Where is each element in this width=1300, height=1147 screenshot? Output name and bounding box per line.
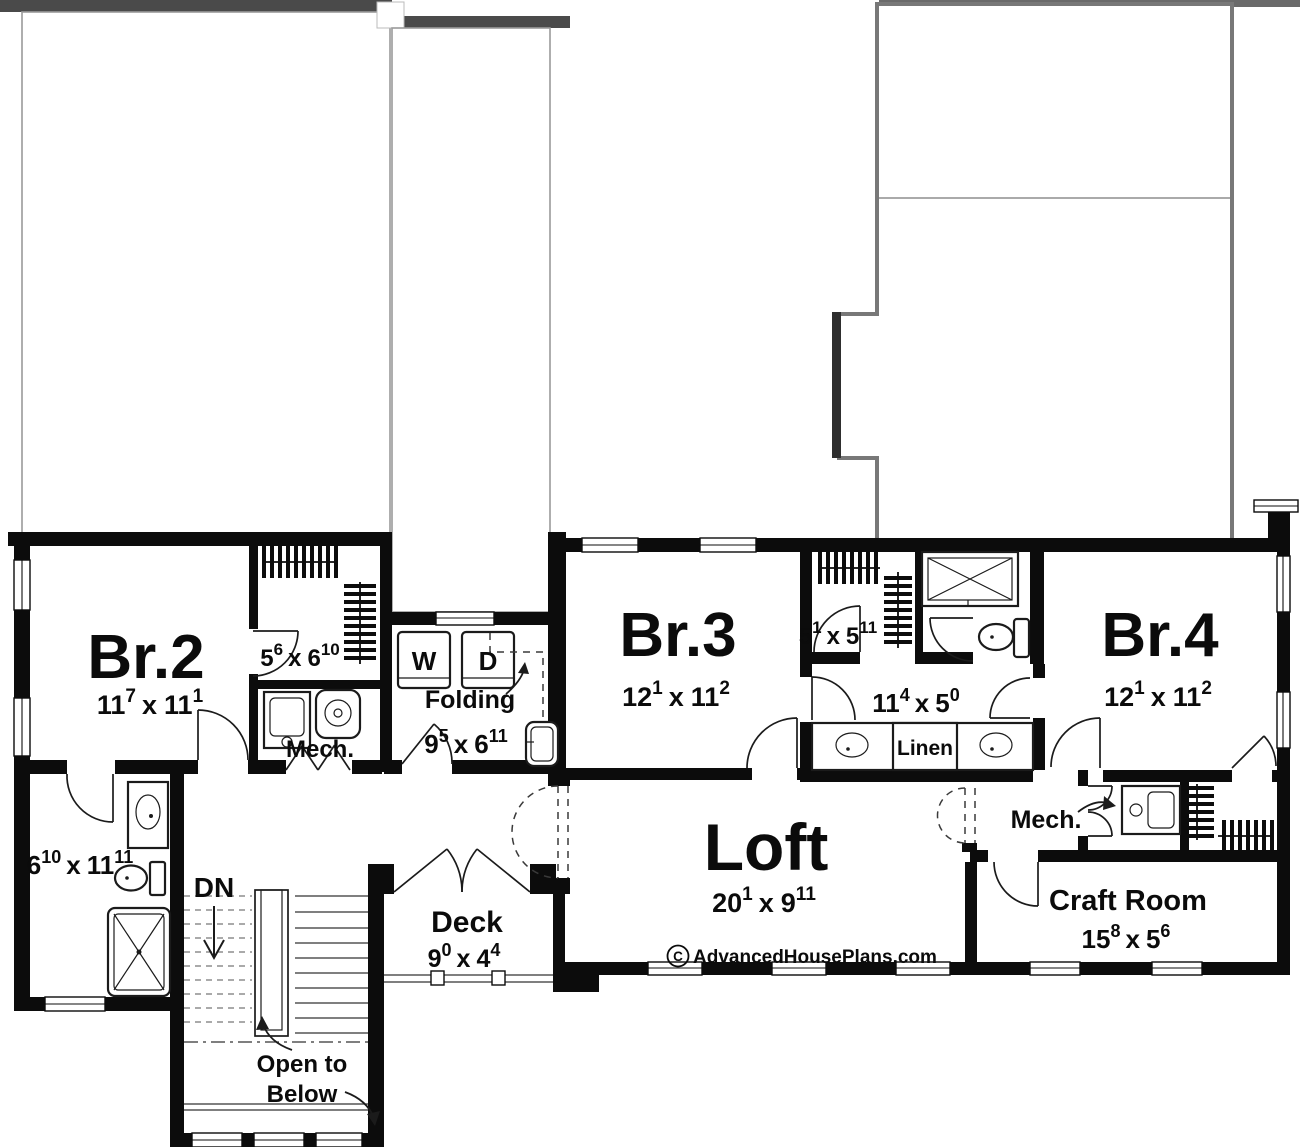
down-arrow — [204, 906, 224, 958]
br4-label: Br.4 — [1101, 601, 1219, 670]
closet-rod — [818, 552, 880, 584]
closet-rod — [262, 546, 336, 578]
loft-dimensions: 201x911 — [712, 884, 816, 918]
br4-dimensions: 121x112 — [1104, 678, 1212, 712]
window — [316, 1133, 362, 1147]
mech-left-label: Mech. — [286, 736, 354, 763]
window — [14, 560, 30, 610]
window — [1152, 962, 1202, 975]
window — [1030, 962, 1080, 975]
stair-rail — [255, 890, 288, 1036]
washer-label: W — [412, 646, 437, 676]
branding-site: AdvancedHousePlans.com — [693, 947, 937, 968]
door-bath-corridor-right — [990, 678, 1030, 718]
window — [1254, 500, 1298, 512]
copyright-branding: C AdvancedHousePlans.com — [668, 946, 937, 969]
door-deck-french — [394, 849, 530, 892]
dn-label: DN — [194, 872, 234, 903]
bath-main-dimensions: 114x50 — [872, 685, 959, 718]
br2-closet-dimensions: 56x610 — [260, 640, 339, 672]
water-heater-fixture — [316, 690, 360, 738]
br3-label: Br.3 — [619, 601, 736, 670]
door-br4-closet — [1232, 736, 1276, 768]
br2-dimensions: 117x111 — [97, 686, 204, 720]
shower-fixture — [108, 908, 170, 996]
copyright-symbol: C — [673, 949, 683, 964]
furnace-fixture — [1122, 786, 1180, 834]
vanity-sink-fixture — [128, 782, 168, 848]
linen-label: Linen — [897, 737, 953, 760]
opening-loft-right-dashed — [938, 788, 976, 843]
craft-dimensions: 158x56 — [1082, 921, 1171, 954]
windows — [14, 500, 1298, 1147]
window — [45, 997, 105, 1011]
folding-label: Folding — [425, 686, 515, 714]
craft-label: Craft Room — [1049, 885, 1207, 917]
closet-rod — [1218, 820, 1274, 852]
toilet-fixture — [979, 619, 1029, 657]
floor-plan-page: Br.2 117x111 56x610 Mech. W D Folding 95… — [0, 0, 1300, 1147]
window — [14, 698, 30, 756]
dryer-label: D — [479, 646, 498, 676]
mech-right-label: Mech. — [1011, 806, 1082, 834]
floor-plan-drawing: Br.2 117x111 56x610 Mech. W D Folding 95… — [0, 0, 1300, 1147]
laundry-sink-fixture — [526, 722, 558, 766]
door-bath-left — [67, 774, 113, 822]
closet-rod — [1186, 784, 1214, 840]
deck-dimensions: 90x44 — [428, 940, 501, 973]
door-br3 — [747, 718, 797, 768]
br3-dimensions: 121x112 — [622, 678, 730, 712]
window — [700, 538, 756, 552]
door-bath-corridor-left — [812, 677, 855, 720]
deck-rail — [384, 971, 553, 985]
door-craft — [994, 862, 1038, 906]
window — [1277, 692, 1290, 748]
closet-rod — [344, 582, 376, 664]
laundry-dimensions: 95x611 — [424, 726, 507, 759]
open-to-below-label-line1: Open to — [257, 1051, 348, 1078]
door-mech-right-double — [1088, 786, 1112, 836]
roof-outlines — [0, 0, 1300, 612]
door-br4 — [1051, 718, 1100, 768]
deck-label: Deck — [431, 906, 503, 939]
window — [436, 612, 494, 625]
door-br2 — [198, 710, 248, 760]
open-to-below-label-line2: Below — [267, 1081, 338, 1108]
br3-closet-dimensions: 51x511 — [799, 618, 878, 650]
loft-label: Loft — [704, 810, 829, 884]
window — [254, 1133, 304, 1147]
window — [1277, 556, 1290, 612]
closet-rod — [884, 572, 912, 648]
window — [582, 538, 638, 552]
shower-fixture — [922, 552, 1018, 606]
window — [192, 1133, 242, 1147]
br2-label: Br.2 — [87, 623, 204, 692]
